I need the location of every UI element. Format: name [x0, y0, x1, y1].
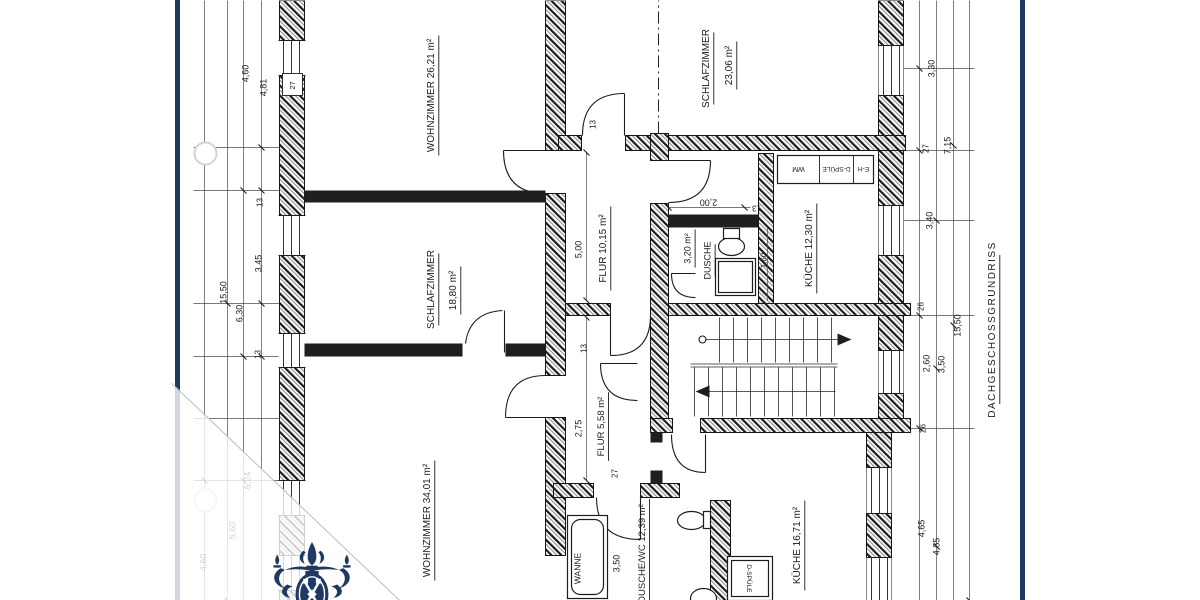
- room-label-wohnzimmer-1: WOHNZIMMER 26,21 m²: [426, 36, 439, 156]
- toilet: [678, 512, 711, 530]
- dim-label: 6,30: [235, 305, 245, 323]
- dim-label-text: 26: [916, 302, 925, 311]
- dim-label: 27: [610, 469, 619, 478]
- dim-label-text: 6,24: [243, 472, 253, 490]
- room-label-kueche-2-text: KÜCHE 16,71 m²: [791, 506, 803, 584]
- dim-label: 3,30: [927, 60, 937, 78]
- dim-label-text: 4,60: [241, 65, 251, 83]
- staircase: [691, 318, 852, 417]
- room-area-schlafzimmer-1-text: 18,80 m²: [448, 270, 459, 310]
- dim-label: 27: [921, 144, 930, 153]
- door-arc: [504, 151, 546, 194]
- fixture-label-spuele-1: D-SPÜLE: [822, 165, 851, 173]
- room-label-flur-2: FLUR 5,58 m²: [596, 392, 609, 461]
- door-arc: [601, 364, 638, 401]
- dim-label-text: 2,60: [922, 355, 932, 373]
- fixture-label-eh: E-H: [858, 165, 870, 172]
- outer-walls: [280, 1, 904, 600]
- door-arc: [672, 274, 696, 298]
- dim-label-text: 4,85: [932, 538, 942, 556]
- dim-label-text: 4,65: [917, 520, 927, 538]
- dim-label-text: 3,40: [925, 212, 935, 230]
- dim-label-text: 13: [253, 350, 262, 359]
- watermark-crest: [263, 542, 361, 600]
- fixture-label-spuele-2-text: D-SPÜLE: [745, 564, 753, 593]
- room-label-dusche-wc: DUSCHE/WC 12,39 m²: [637, 499, 650, 600]
- door-arc: [506, 376, 546, 418]
- door-swings: [466, 94, 711, 540]
- dim-label: 4,85: [932, 538, 942, 556]
- door-arc: [672, 435, 706, 473]
- dim-label-text: 1,60: [759, 252, 768, 268]
- dim-label: 3,50: [937, 356, 947, 374]
- room-label-schlafzimmer-1: SCHLAFZIMMER: [426, 250, 439, 329]
- dim-label-text: 5,60: [228, 522, 238, 540]
- dim-label: 1,60: [759, 252, 768, 268]
- dim-label: 2,60: [922, 355, 932, 373]
- room-label-dusche-text: DUSCHE: [703, 241, 713, 279]
- dim-label-text: 15,50: [953, 314, 963, 337]
- plan-title: DACHGESCHOSSGRUNDRISS: [987, 241, 1000, 418]
- door-arc: [669, 161, 711, 203]
- fixture-label-spuele-2: D-SPÜLE: [745, 564, 753, 593]
- dim-label: 6,24: [243, 472, 253, 490]
- floorplan-scan-page: WOHNZIMMER 26,21 m²SCHLAFZIMMER18,80 m²W…: [0, 0, 1200, 600]
- dim-label-text: 13: [588, 120, 597, 129]
- room-label-kueche-1: KÜCHE 12,30 m²: [803, 204, 817, 294]
- dim-label-text: 7,15: [943, 137, 953, 155]
- dim-label: 3,40: [925, 212, 935, 230]
- mid-dimension-lines: [584, 150, 768, 484]
- room-label-wohnzimmer-2-text: WOHNZIMMER 34,01 m²: [422, 463, 433, 577]
- dim-label: 3,45: [254, 255, 264, 273]
- dim-label-text: 13: [579, 344, 588, 353]
- room-label-dusche: DUSCHE: [703, 241, 715, 279]
- room-label-wohnzimmer-2: WOHNZIMMER 34,01 m²: [422, 461, 435, 581]
- dim-label-text: 15,50: [219, 281, 229, 304]
- room-label-schlafzimmer-2: SCHLAFZIMMER: [701, 29, 714, 108]
- room-area-schlafzimmer-1: 18,80 m²: [448, 267, 461, 315]
- fixture-label-wm-text: WM: [792, 165, 805, 172]
- room-label-flur-2-text: FLUR 5,58 m²: [596, 397, 607, 457]
- dim-label: 13: [588, 120, 597, 129]
- room-area-schlafzimmer-2: 23,06 m²: [724, 42, 737, 90]
- dim-label-text: 3,30: [927, 60, 937, 78]
- dim-label: 15,50: [953, 314, 963, 337]
- dim-label: 4,60: [241, 65, 251, 83]
- dim-label-text: 3,50: [937, 356, 947, 374]
- door-arc: [466, 311, 505, 353]
- dim-label-text: 4,81: [259, 79, 269, 97]
- stair-arrow-down-icon: [838, 334, 852, 346]
- hole-punch: [195, 143, 217, 165]
- dim-label: 2,00: [700, 197, 718, 207]
- dim-label-text: 13: [255, 198, 264, 207]
- room-label-flur-1-text: FLUR 10,15 m²: [598, 214, 609, 283]
- dim-label: 4,60: [199, 554, 209, 572]
- fixture-label-wanne: WANNE: [572, 553, 582, 585]
- fixture-label-wm: WM: [792, 165, 805, 172]
- dimension-chains-bottom: [904, 1, 975, 600]
- dim-label-text: 26: [918, 424, 927, 433]
- dim-label-text: 27: [288, 81, 297, 89]
- room-label-flur-1: FLUR 10,15 m²: [598, 207, 611, 291]
- dim-label-text: 13: [752, 204, 761, 213]
- room-area-schlafzimmer-2-text: 23,06 m²: [724, 45, 735, 85]
- dim-label-text: 2,00: [700, 197, 718, 207]
- dim-label: 26: [918, 424, 927, 433]
- dim-label: 13: [253, 350, 262, 359]
- dim-label: 15,50: [219, 281, 229, 304]
- dim-label-text: 3,50: [612, 555, 622, 573]
- toilet: [719, 229, 745, 256]
- dim-label: 5,60: [228, 522, 238, 540]
- dim-label: 7,15: [943, 137, 953, 155]
- room-label-schlafzimmer-1-text: SCHLAFZIMMER: [426, 250, 437, 329]
- interior-walls: [305, 1, 911, 600]
- dim-label: 13: [752, 204, 761, 213]
- shower-tray: [716, 259, 756, 296]
- dim-label: 13: [579, 344, 588, 353]
- dim-label: 2,75: [574, 420, 584, 438]
- dim-label-text: 3,45: [254, 255, 264, 273]
- hole-punch: [195, 490, 217, 512]
- dim-label-text: 5,00: [574, 241, 584, 259]
- dim-label-text: 2,75: [574, 420, 584, 438]
- dim-label: 4,65: [917, 520, 927, 538]
- room-area-dusche-text: 3,20 m²: [683, 233, 693, 264]
- plan-title-text: DACHGESCHOSSGRUNDRISS: [987, 241, 998, 418]
- room-label-dusche-wc-text: DUSCHE/WC 12,39 m²: [637, 504, 648, 600]
- dim-label-text: 6,30: [235, 305, 245, 323]
- room-label-schlafzimmer-2-text: SCHLAFZIMMER: [701, 29, 712, 108]
- room-label-kueche-2: KÜCHE 16,71 m²: [791, 501, 805, 591]
- fixture-label-wanne-text: WANNE: [572, 553, 582, 585]
- dim-label: 3,50: [612, 555, 622, 573]
- dim-label: 26: [916, 302, 925, 311]
- dim-label: 5,00: [574, 241, 584, 259]
- dim-label: 13: [255, 198, 264, 207]
- dim-label-text: 27: [921, 144, 930, 153]
- dim-label-text: 27: [610, 469, 619, 478]
- room-label-kueche-1-text: KÜCHE 12,30 m²: [803, 209, 815, 287]
- fixture-label-spuele-1-text: D-SPÜLE: [822, 165, 851, 173]
- dim-label: 4,81: [259, 79, 269, 97]
- fixture-label-eh-text: E-H: [858, 165, 870, 172]
- room-area-dusche: 3,20 m²: [683, 229, 695, 267]
- room-label-wohnzimmer-1-text: WOHNZIMMER 26,21 m²: [426, 38, 437, 152]
- dim-label: 27: [288, 81, 297, 89]
- dim-label-text: 4,60: [199, 554, 209, 572]
- stair-arrow-up-icon: [696, 386, 710, 398]
- scan-page-edge-right: [1020, 0, 1025, 600]
- door-arc: [611, 316, 651, 356]
- scan-page-edge-left: [175, 0, 180, 600]
